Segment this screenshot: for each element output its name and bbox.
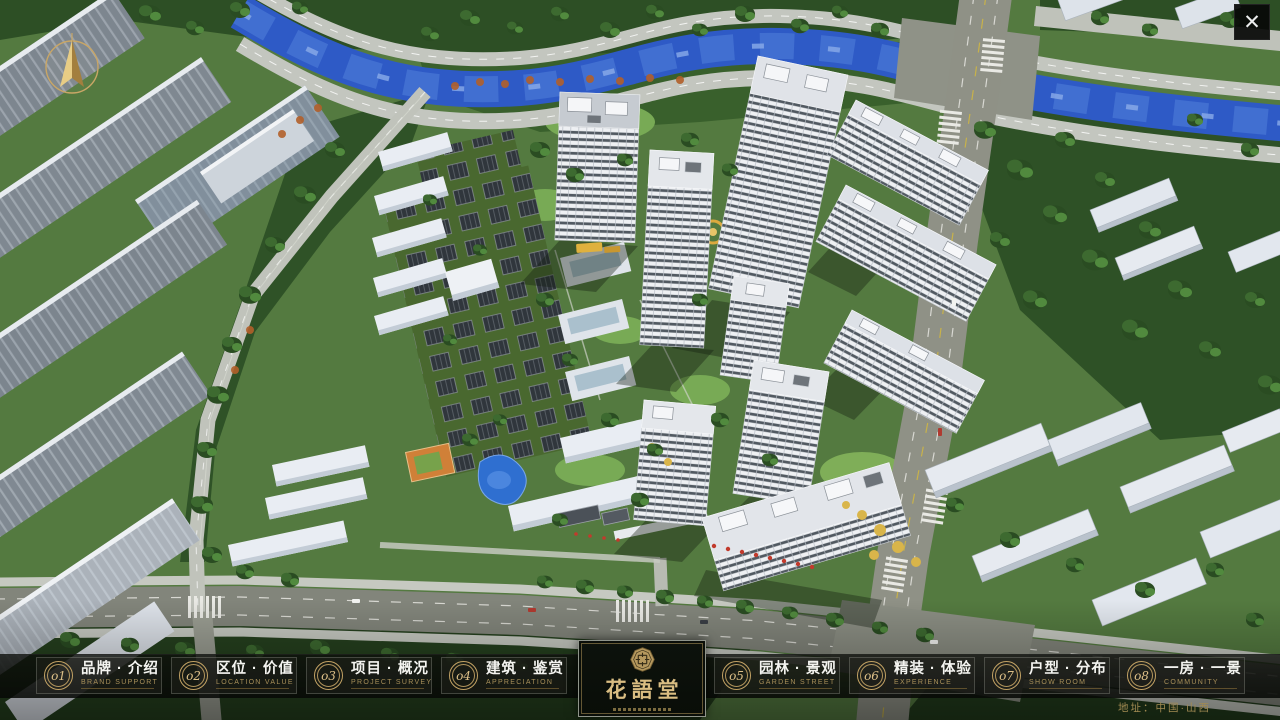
nav-label-zh: 品牌 · 介绍 <box>81 662 154 677</box>
address-label: 地址：中国·山西 <box>1118 700 1211 715</box>
close-button[interactable]: ✕ <box>1234 4 1270 40</box>
nav-label-zh: 建筑 · 鉴赏 <box>486 662 559 677</box>
nav-label-zh: 区位 · 价值 <box>216 662 289 677</box>
item-number-badge: o3 <box>314 661 343 690</box>
nav-label-en: SHOW ROOM <box>1029 679 1102 688</box>
logo-panel[interactable]: 花語堂 <box>578 640 706 717</box>
nav-label-en: PROJECT SURVEY <box>351 679 424 688</box>
masterplan-3d-view[interactable] <box>0 0 1280 720</box>
nav-item-room-view[interactable]: o8 一房 · 一景COMMUNITY <box>1119 657 1245 694</box>
item-number-badge: o5 <box>722 661 751 690</box>
nav-item-brand[interactable]: o1 品牌 · 介绍BRAND SUPPORT <box>36 657 162 694</box>
nav-label-zh: 园林 · 景观 <box>759 662 832 677</box>
nav-label-zh: 户型 · 分布 <box>1029 662 1102 677</box>
nav-item-garden[interactable]: o5 园林 · 景观GARDEN STREET <box>714 657 840 694</box>
nav-item-project[interactable]: o3 项目 · 概况PROJECT SURVEY <box>306 657 432 694</box>
item-number-badge: o7 <box>992 661 1021 690</box>
item-number-badge: o6 <box>857 661 886 690</box>
nav-group-left: o1 品牌 · 介绍BRAND SUPPORT o2 区位 · 价值LOCATI… <box>36 657 567 694</box>
logo-name: 花語堂 <box>601 674 684 704</box>
item-number-badge: o4 <box>449 661 478 690</box>
item-number-badge: o1 <box>44 661 73 690</box>
nav-label-zh: 项目 · 概况 <box>351 662 424 677</box>
item-number-badge: o2 <box>179 661 208 690</box>
seal-icon <box>629 646 656 673</box>
nav-item-interior[interactable]: o6 精装 · 体验EXPERIENCE <box>849 657 975 694</box>
nav-label-zh: 一房 · 一景 <box>1164 662 1237 677</box>
nav-label-en: APPRECIATION <box>486 679 559 688</box>
nav-group-right: o5 园林 · 景观GARDEN STREET o6 精装 · 体验EXPERI… <box>714 657 1245 694</box>
nav-label-en: EXPERIENCE <box>894 679 967 688</box>
nav-label-en: LOCATION VALUE <box>216 679 289 688</box>
presentation-stage: ✕ o1 品牌 · 介绍BRAND SUPPORT o2 区位 · 价值LOCA… <box>0 0 1280 720</box>
close-icon: ✕ <box>1243 12 1261 33</box>
nav-item-architecture[interactable]: o4 建筑 · 鉴赏APPRECIATION <box>441 657 567 694</box>
logo-tagline-decoration <box>613 708 671 711</box>
item-number-badge: o8 <box>1127 661 1156 690</box>
nav-label-en: COMMUNITY <box>1164 679 1237 688</box>
nav-label-en: BRAND SUPPORT <box>81 679 154 688</box>
nav-label-zh: 精装 · 体验 <box>894 662 967 677</box>
nav-item-location[interactable]: o2 区位 · 价值LOCATION VALUE <box>171 657 297 694</box>
compass-icon <box>40 32 104 98</box>
nav-label-en: GARDEN STREET <box>759 679 832 688</box>
nav-item-unit-plans[interactable]: o7 户型 · 分布SHOW ROOM <box>984 657 1110 694</box>
